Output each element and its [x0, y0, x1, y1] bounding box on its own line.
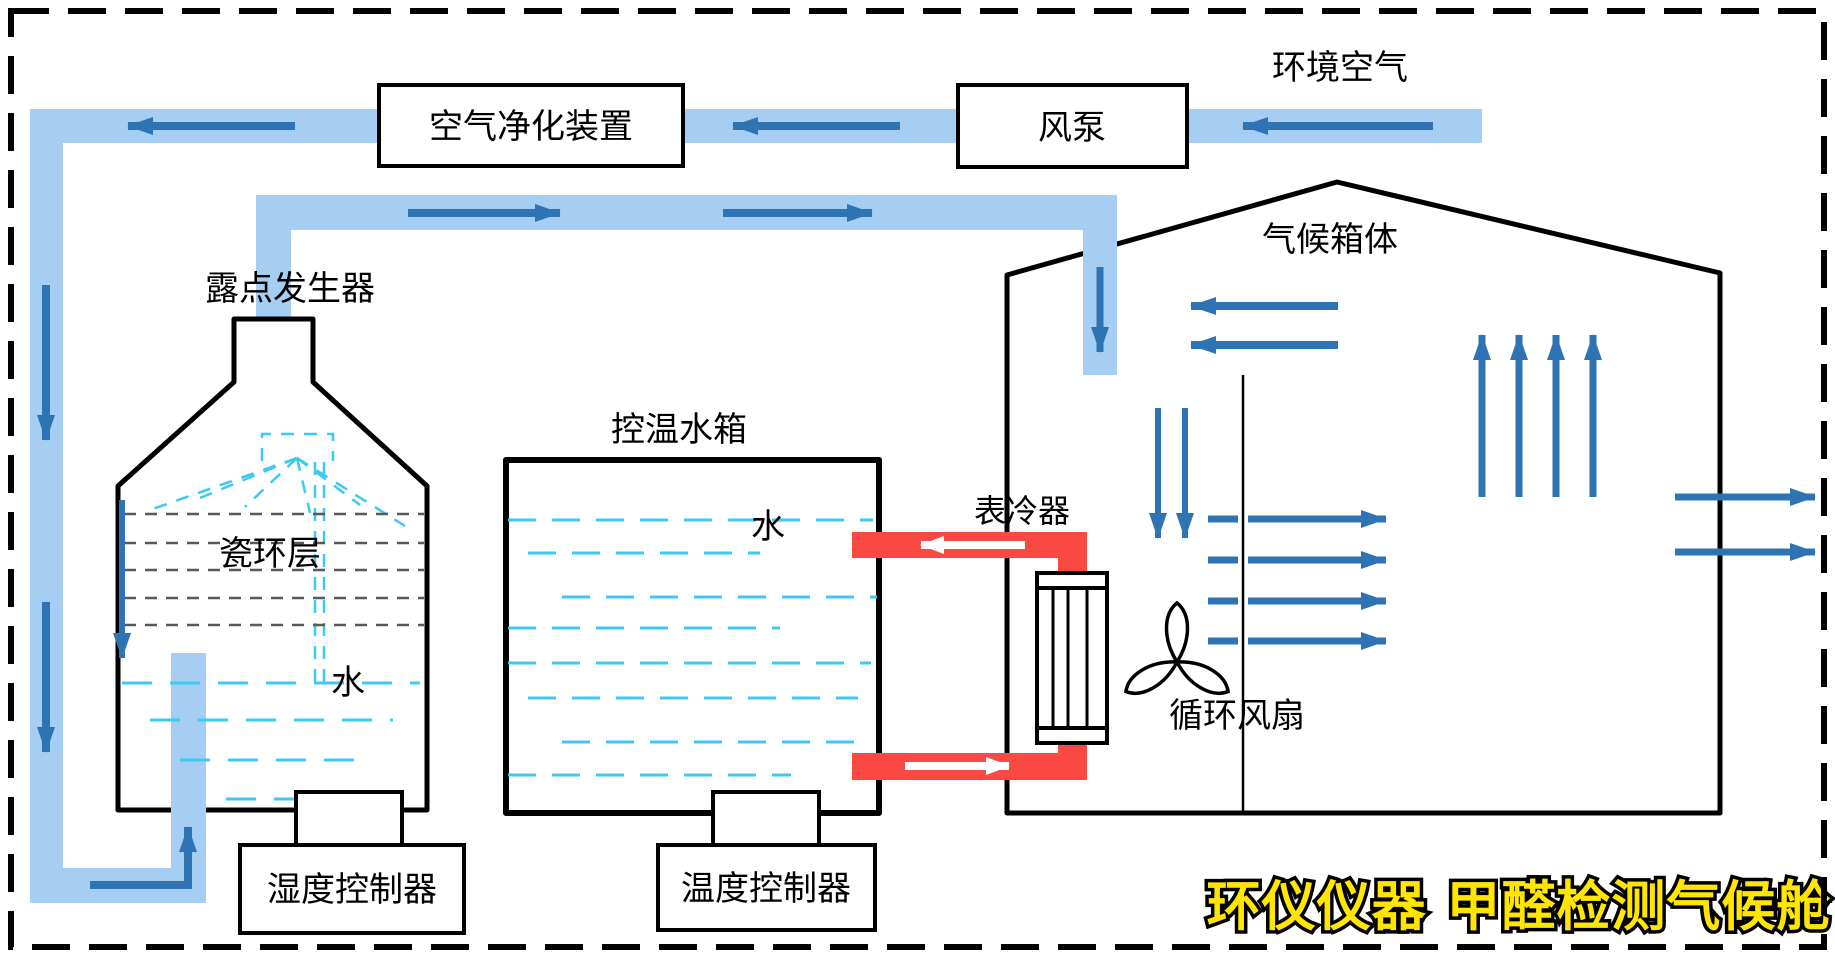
- ambient-air-label: 环境空气: [1272, 48, 1408, 88]
- climate-chamber-label: 气候箱体: [1262, 220, 1398, 260]
- circulation-fan-label: 循环风扇: [1169, 696, 1305, 736]
- brand-watermark: 环仪仪器 甲醛检测气候舱: [1207, 875, 1832, 938]
- air-pump-label: 风泵: [1038, 108, 1106, 148]
- ceramic-ring-layer-label: 瓷环层: [219, 534, 321, 574]
- coolant-circuit: 表冷器: [852, 492, 1107, 780]
- tank-water-label: 水: [751, 507, 785, 547]
- tank-outline: [506, 460, 879, 813]
- bottle-water-label: 水: [331, 663, 365, 703]
- dew-point-generator: 露点发生器 瓷环层: [90, 269, 464, 933]
- air-purifier-box: 空气净化装置: [379, 85, 683, 166]
- pipe-second-row: [256, 195, 1117, 230]
- cooler-body: [1037, 573, 1107, 743]
- humidity-controller-label: 湿度控制器: [267, 870, 437, 910]
- schematic-svg: 空气净化装置 风泵 环境空气 露点发生器 瓷环层: [0, 0, 1835, 958]
- dew-point-generator-label: 露点发生器: [205, 269, 375, 309]
- coolant-elbow-top: [1058, 532, 1087, 577]
- temp-water-tank-label: 控温水箱: [611, 410, 747, 450]
- diagram-canvas: 空气净化装置 风泵 环境空气 露点发生器 瓷环层: [0, 0, 1835, 958]
- pipe-left-vertical: [30, 109, 63, 903]
- air-pump-box: 风泵: [958, 85, 1187, 167]
- humidity-sensor-stub: [296, 792, 402, 845]
- temperature-controller-label: 温度控制器: [681, 869, 851, 909]
- surface-cooler: [1037, 573, 1107, 743]
- temp-water-tank: 控温水箱 水 温度控制器: [506, 410, 879, 930]
- temperature-sensor-stub: [713, 792, 819, 845]
- surface-cooler-label: 表冷器: [974, 492, 1070, 530]
- air-purifier-label: 空气净化装置: [429, 107, 633, 147]
- climate-chamber: 气候箱体: [1007, 182, 1815, 813]
